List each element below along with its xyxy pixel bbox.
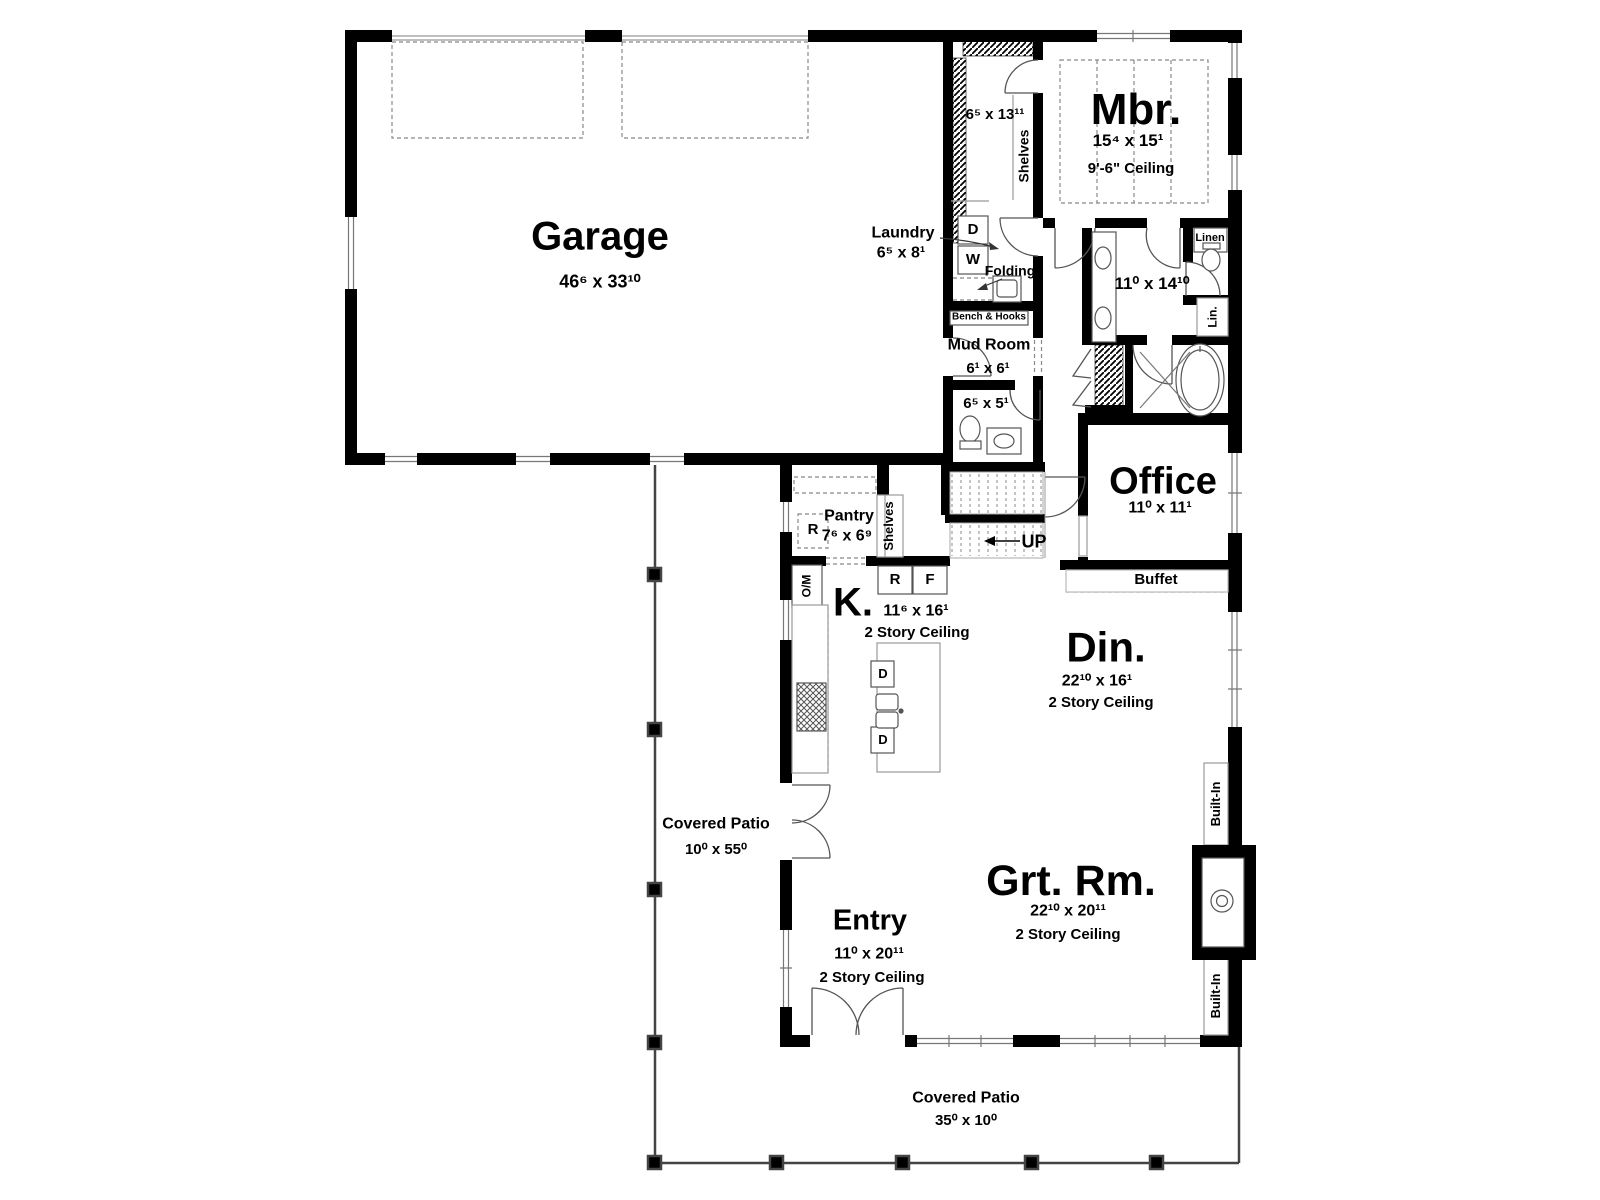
floor-plan: Garage 46⁶ x 33¹⁰ Laundry 6⁵ x 8¹ D W Fo… bbox=[0, 0, 1600, 1200]
side-patio-dims-label: 10⁰ x 55⁰ bbox=[685, 842, 747, 858]
tub-inner bbox=[1181, 350, 1219, 410]
great-room-room-label: Grt. Rm. bbox=[986, 858, 1156, 904]
entry-room-label: Entry bbox=[833, 905, 907, 936]
fireplace-ring-inner bbox=[1217, 896, 1228, 907]
built-in-bottom-label: Built-In bbox=[1209, 974, 1223, 1019]
dining-room-label: Din. bbox=[1066, 624, 1145, 669]
garage-dims-label: 46⁶ x 33¹⁰ bbox=[559, 272, 641, 291]
folding-label: Folding bbox=[985, 263, 1036, 278]
pantry-fridge-label: R bbox=[808, 522, 819, 538]
bench-hooks-label: Bench & Hooks bbox=[952, 313, 1026, 324]
pantry-dims-label: 7⁶ x 6⁹ bbox=[822, 527, 873, 544]
great-room-dims-label: 22¹⁰ x 20¹¹ bbox=[1030, 902, 1106, 919]
master-toilet bbox=[1202, 249, 1220, 271]
laundry-sink bbox=[997, 280, 1017, 297]
mud-room-room-label: Mud Room bbox=[941, 336, 1037, 353]
washer-label: W bbox=[966, 252, 980, 268]
entry-ceiling-label: 2 Story Ceiling bbox=[819, 970, 924, 986]
kitchen-freezer-label: F bbox=[925, 572, 934, 588]
master-bath-dims-label: 11⁰ x 14¹⁰ bbox=[1114, 275, 1189, 293]
kitchen-dims-label: 11⁶ x 16¹ bbox=[883, 602, 948, 619]
kitchen-fridge-label: R bbox=[890, 572, 901, 588]
garage-room-label: Garage bbox=[531, 215, 669, 258]
rear-patio-room-label: Covered Patio bbox=[912, 1089, 1020, 1106]
powder-toilet bbox=[960, 416, 980, 442]
powder-room-dims-label: 6⁵ x 5¹ bbox=[963, 396, 1008, 412]
office-room-label: Office bbox=[1109, 461, 1217, 502]
entry-dims-label: 11⁰ x 20¹¹ bbox=[834, 945, 904, 962]
office-opening bbox=[1079, 516, 1087, 556]
island-sink bbox=[876, 694, 898, 710]
closet-rod-hatch bbox=[953, 58, 966, 243]
kitchen-room-label: K. bbox=[833, 581, 873, 624]
great-room-ceiling-label: 2 Story Ceiling bbox=[1015, 927, 1120, 943]
master-closet-shelves-label: Shelves bbox=[1016, 130, 1031, 183]
master-closet-dims-label: 6⁵ x 13¹¹ bbox=[966, 107, 1025, 123]
bath-sink bbox=[1095, 307, 1111, 329]
kitchen-ceiling-label: 2 Story Ceiling bbox=[864, 625, 969, 641]
stairs-up-label: UP bbox=[1021, 532, 1046, 551]
powder-toilet-tank bbox=[960, 441, 981, 449]
master-bedroom-ceiling-label: 9'-6" Ceiling bbox=[1088, 161, 1175, 177]
dining-dims-label: 22¹⁰ x 16¹ bbox=[1062, 672, 1132, 689]
dishwasher2-label: D bbox=[878, 733, 887, 747]
laundry-room-label: Laundry bbox=[871, 224, 934, 241]
closet-rod-hatch bbox=[963, 36, 1033, 56]
office-dims-label: 11⁰ x 11¹ bbox=[1128, 499, 1191, 516]
master-bedroom-room-label: Mbr. bbox=[1091, 86, 1181, 134]
range bbox=[797, 683, 826, 731]
pantry-shelves-label: Shelves bbox=[882, 501, 896, 550]
hall-closet-rod-hatch bbox=[1095, 345, 1123, 411]
linen2-label: Lin. bbox=[1207, 306, 1220, 327]
built-in-top-label: Built-In bbox=[1209, 782, 1223, 827]
dryer-label: D bbox=[968, 222, 979, 238]
floor-plan-drawing bbox=[0, 0, 1600, 1200]
island-sink bbox=[876, 712, 898, 728]
pantry-room-label: Pantry bbox=[824, 507, 874, 524]
dashed-details bbox=[392, 42, 1228, 945]
bath-sink bbox=[1095, 247, 1111, 269]
mud-room-dims-label: 6¹ x 6¹ bbox=[966, 361, 1009, 377]
dining-ceiling-label: 2 Story Ceiling bbox=[1048, 695, 1153, 711]
oven-microwave-label: O/M bbox=[801, 575, 814, 598]
master-bedroom-dims-label: 15⁴ x 15¹ bbox=[1093, 132, 1164, 150]
side-patio-room-label: Covered Patio bbox=[662, 815, 770, 832]
powder-sink bbox=[994, 434, 1014, 448]
linen-label: Linen bbox=[1195, 233, 1224, 245]
rear-patio-dims-label: 35⁰ x 10⁰ bbox=[935, 1113, 997, 1129]
laundry-dims-label: 6⁵ x 8¹ bbox=[877, 244, 925, 261]
dishwasher1-label: D bbox=[878, 667, 887, 681]
buffet-label: Buffet bbox=[1134, 572, 1177, 588]
